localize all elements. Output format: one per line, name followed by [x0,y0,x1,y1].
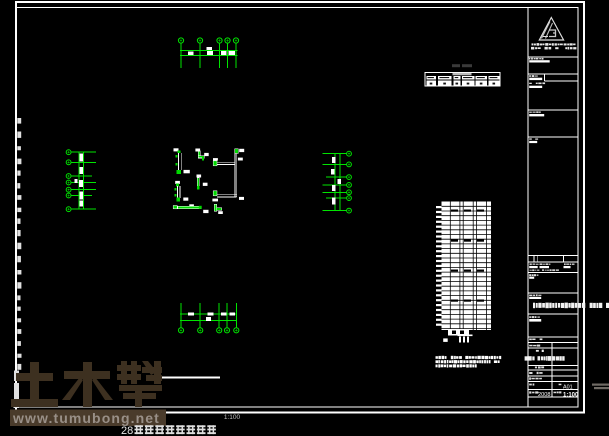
svg-text:1:100: 1:100 [224,414,241,421]
svg-text:28: 28 [121,425,133,436]
svg-text:1:100: 1:100 [563,392,579,398]
svg-text:www.tumubong.net: www.tumubong.net [12,410,160,426]
svg-text:A01: A01 [563,384,573,390]
svg-text:2008: 2008 [538,392,550,398]
